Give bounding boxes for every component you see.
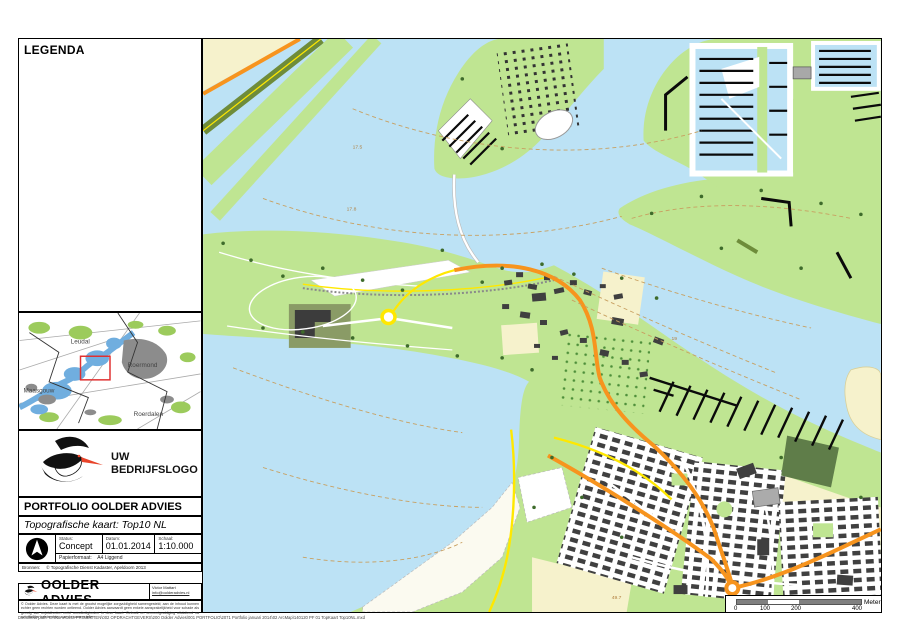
map-frame: 17.5 17.8 19 49.7 bbox=[202, 38, 882, 613]
overview-map: Leudal Roermond Maasgouw Roerdalen bbox=[19, 313, 201, 429]
scale-tick-400: 400 bbox=[852, 606, 862, 612]
large-gray-building bbox=[752, 488, 780, 507]
depth-label: 17.8 bbox=[347, 206, 357, 212]
logo-panel: UW BEDRIJFSLOGO bbox=[18, 430, 202, 497]
status-cell: Status: Concept bbox=[56, 535, 103, 554]
scale-bar-segments bbox=[736, 599, 862, 605]
title-panel: PORTFOLIO OOLDER ADVIES bbox=[18, 497, 202, 516]
minimap-label-maasgouw: Maasgouw bbox=[23, 388, 54, 395]
minimap-label-leudal: Leudal bbox=[71, 338, 90, 345]
disclaimer-panel: © Oolder Advies. Deze kaart is met de gr… bbox=[18, 600, 202, 613]
topographic-map: 17.5 17.8 19 49.7 bbox=[203, 39, 881, 612]
bronnen-value: © Topografische Dienst Kadaster, Apeldoo… bbox=[46, 565, 146, 570]
bronnen-label: Bronnen: bbox=[22, 565, 40, 570]
overview-map-panel: Leudal Roermond Maasgouw Roerdalen bbox=[18, 312, 202, 430]
footer-company-panel: OOLDER ADVIES Victor Mattart info@oolder… bbox=[18, 583, 202, 600]
depth-label: 49.7 bbox=[612, 595, 622, 601]
scale-tick-0: 0 bbox=[734, 606, 737, 612]
schaal-cell: Schaal: 1:10.000 bbox=[155, 535, 201, 554]
depth-label: 17.5 bbox=[353, 145, 363, 151]
north-arrow-cell bbox=[19, 535, 56, 562]
footer-contact: Victor Mattart info@oolderadvies.nl bbox=[149, 584, 201, 599]
footer-bird-icon bbox=[21, 584, 39, 599]
scale-unit: Meter bbox=[864, 599, 881, 606]
map-title: PORTFOLIO OOLDER ADVIES bbox=[19, 498, 201, 516]
contact-email[interactable]: info@oolderadvies.nl bbox=[152, 590, 199, 595]
map-document-page: LEGENDA bbox=[0, 0, 900, 637]
scale-tick-100: 100 bbox=[760, 606, 770, 612]
minimap-label-roermond: Roermond bbox=[128, 362, 158, 369]
minimap-label-roerdalen: Roerdalen bbox=[134, 411, 164, 418]
legend-panel: LEGENDA bbox=[18, 38, 202, 312]
subtitle-panel: Topografische kaart: Top10 NL bbox=[18, 516, 202, 534]
papierformaat-value: A4 Liggend bbox=[97, 555, 122, 561]
datum-value: 01.01.2014 bbox=[106, 541, 152, 551]
info-table-panel: Status: Concept Datum: 01.01.2014 Schaal… bbox=[18, 534, 202, 563]
datum-cell: Datum: 01.01.2014 bbox=[103, 535, 156, 554]
logo-text: UW BEDRIJFSLOGO bbox=[111, 451, 198, 476]
legend-title: LEGENDA bbox=[19, 39, 201, 61]
schaal-value: 1:10.000 bbox=[158, 541, 198, 551]
status-value: Concept bbox=[59, 541, 99, 551]
north-arrow-icon bbox=[25, 537, 49, 561]
map-subtitle: Topografische kaart: Top10 NL bbox=[19, 517, 201, 533]
document-path: Document path: G:\01 AVOLIS PROJECTEN\00… bbox=[18, 615, 698, 620]
depth-label: 19 bbox=[672, 336, 678, 342]
scale-bar: 0 100 200 400 Meter bbox=[725, 595, 882, 613]
papierformaat-label: Papierformaat: bbox=[59, 555, 92, 561]
orchard bbox=[560, 332, 651, 414]
logo-line2: BEDRIJFSLOGO bbox=[111, 464, 198, 477]
company-bird-logo bbox=[25, 435, 111, 493]
bronnen-panel: Bronnen: © Topografische Dienst Kadaster… bbox=[18, 563, 202, 572]
scale-tick-200: 200 bbox=[791, 606, 801, 612]
logo-line1: UW bbox=[111, 451, 198, 464]
papierformaat-row: Papierformaat: A4 Liggend bbox=[56, 554, 201, 562]
